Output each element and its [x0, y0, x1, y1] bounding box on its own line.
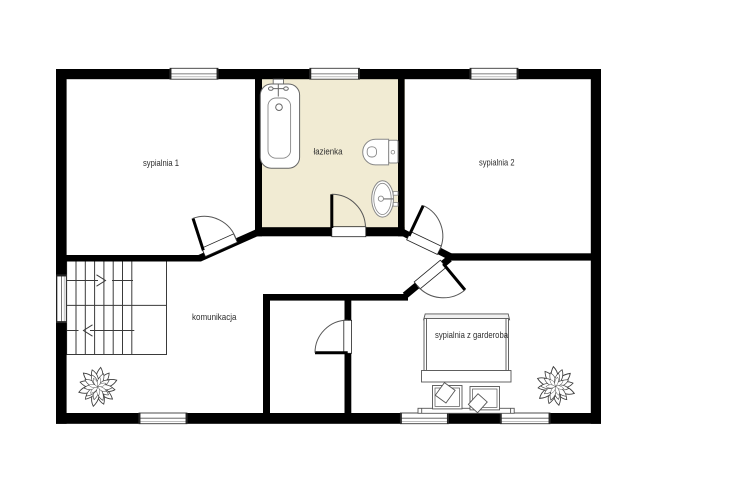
svg-text:sypialnia z garderoba: sypialnia z garderoba: [435, 330, 509, 341]
svg-text:sypialnia 2: sypialnia 2: [479, 158, 515, 169]
svg-text:łazienka: łazienka: [314, 147, 344, 158]
svg-text:sypialnia 1: sypialnia 1: [143, 158, 179, 169]
svg-text:komunikacja: komunikacja: [192, 312, 237, 323]
